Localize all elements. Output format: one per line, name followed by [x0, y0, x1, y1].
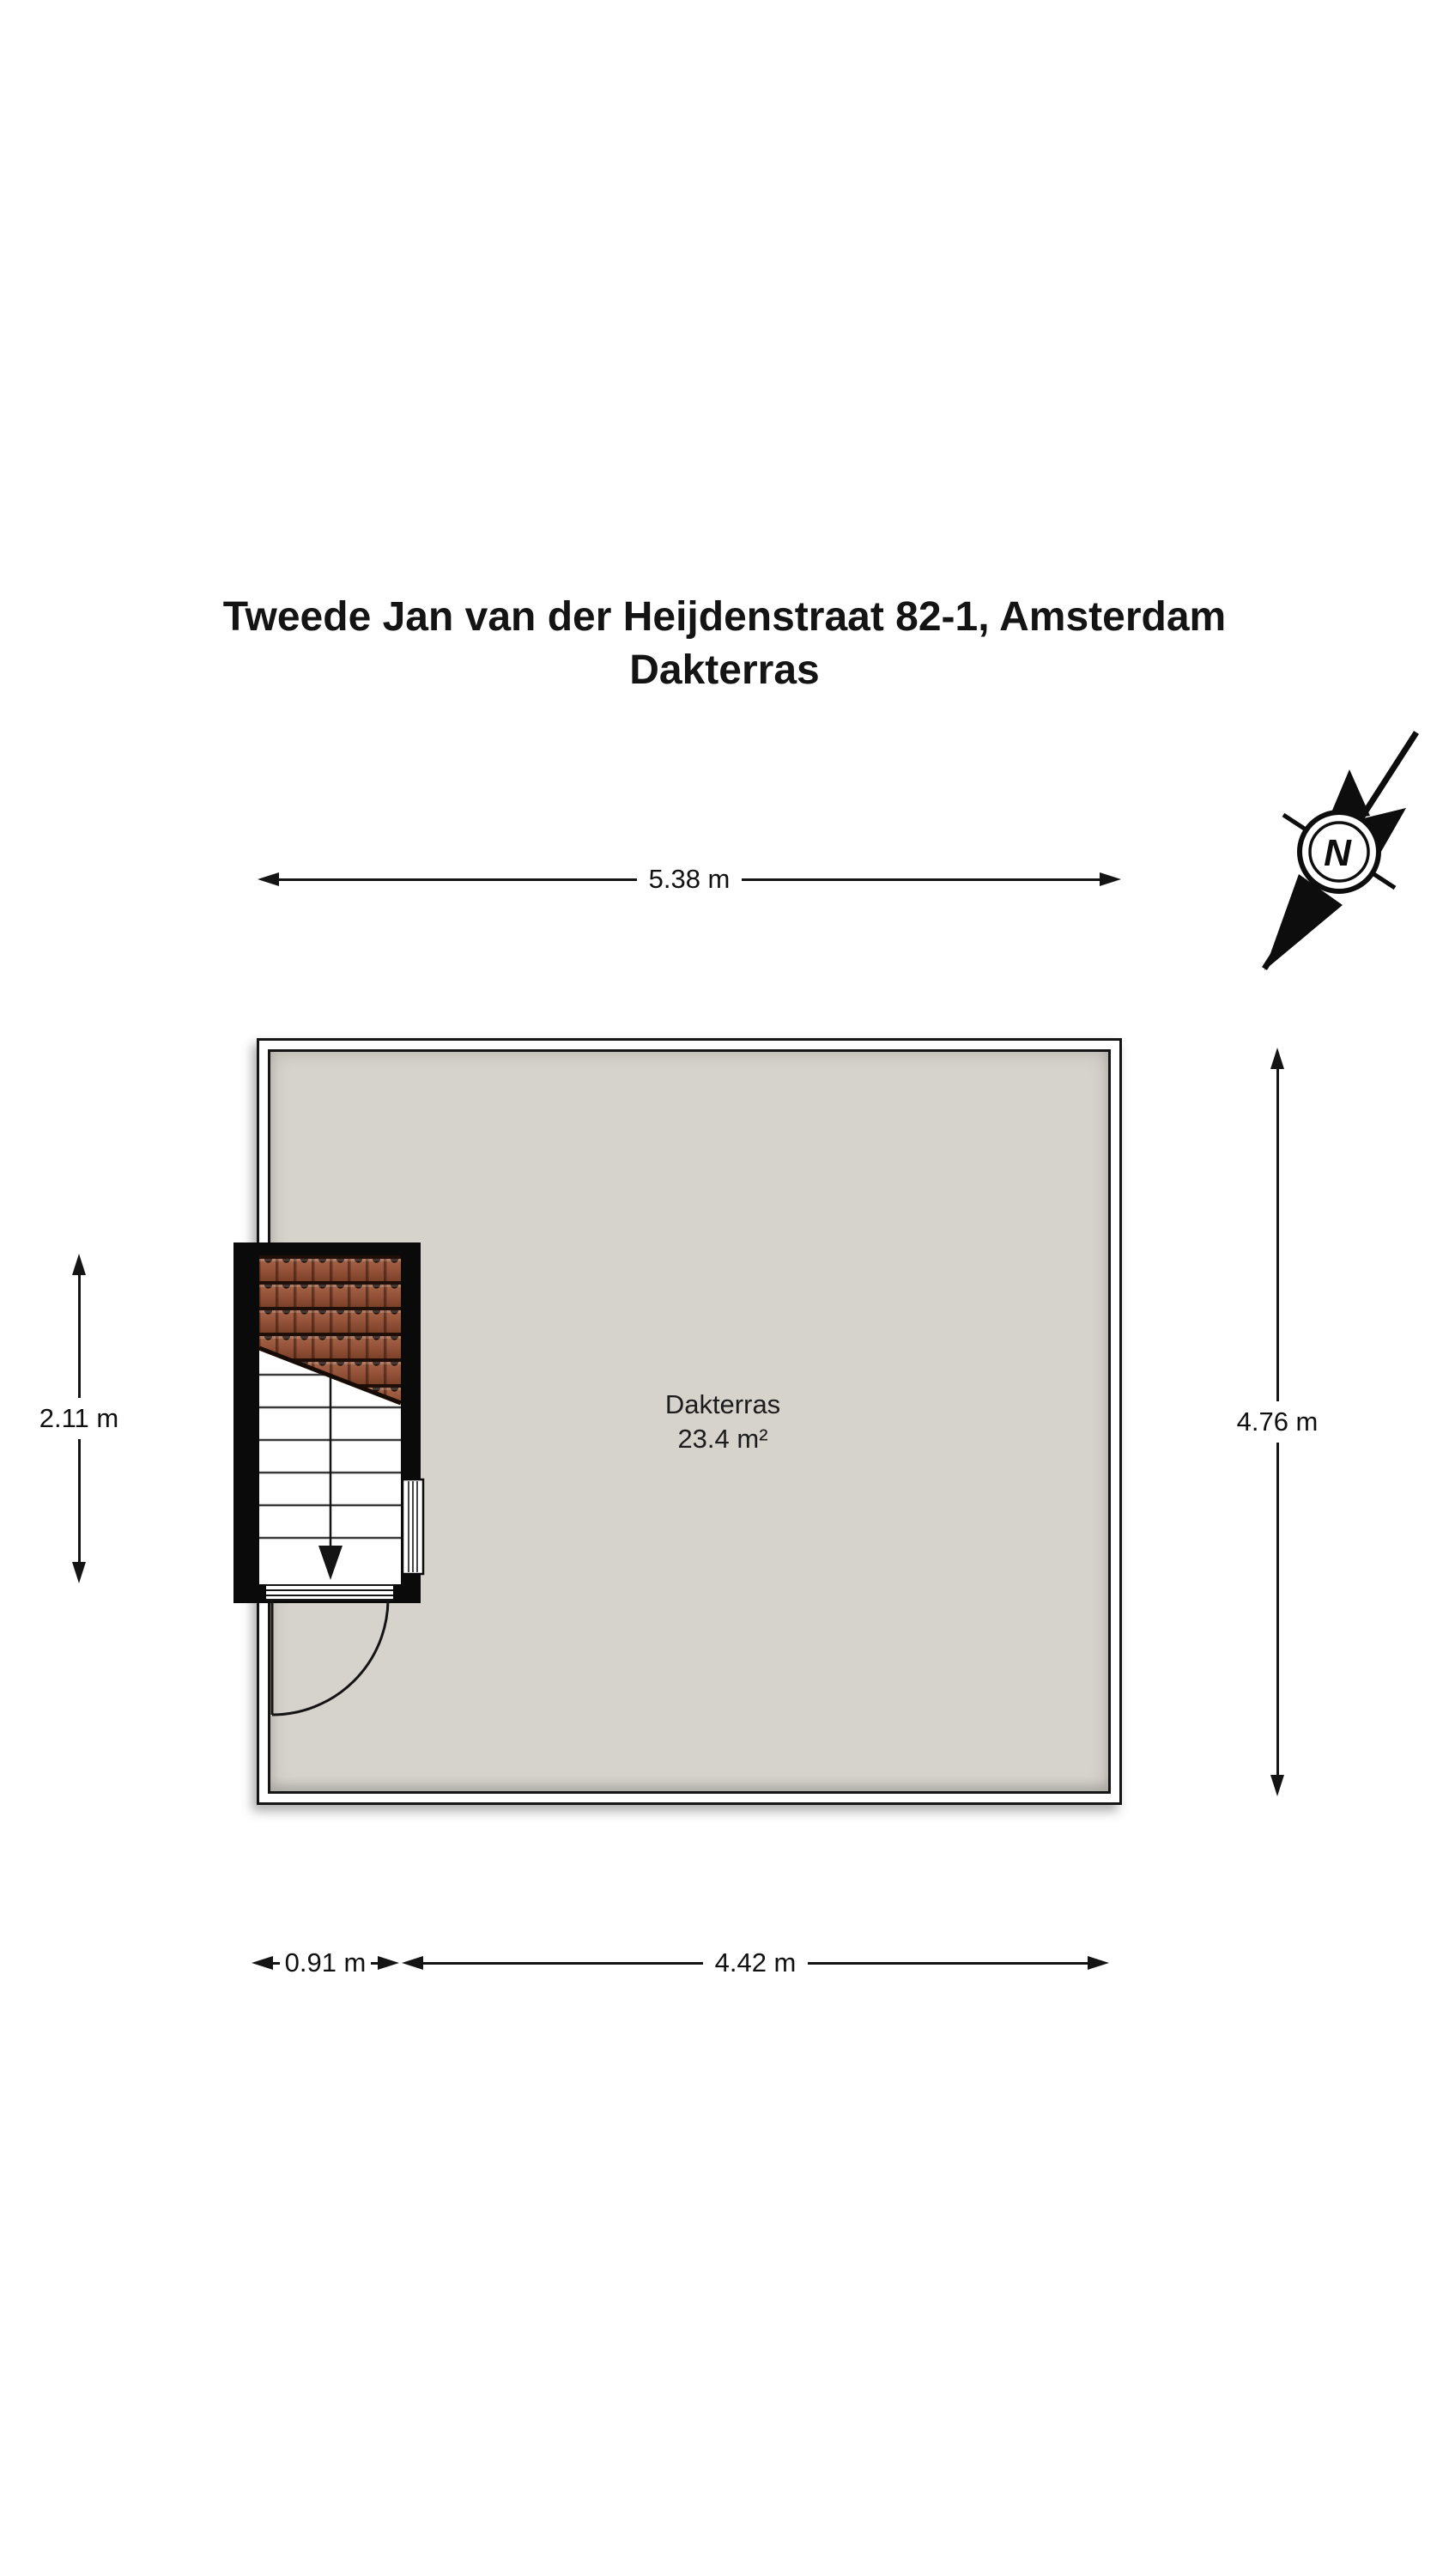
- dimension-line: [423, 1962, 703, 1965]
- compass-point-north: [1327, 769, 1370, 823]
- arrowhead-right-icon: [1100, 872, 1121, 886]
- dimension-line: [371, 1962, 378, 1965]
- dimension-right: 4.76 m: [1226, 1048, 1329, 1796]
- compass: N: [1264, 732, 1416, 970]
- arrowhead-right-icon: [1088, 1956, 1109, 1970]
- dimension-bottom-left-label: 0.91 m: [280, 1949, 371, 1977]
- arrowhead-up-icon: [1270, 1048, 1284, 1069]
- dimension-top-label: 5.38 m: [637, 866, 743, 893]
- dimension-right-label: 4.76 m: [1237, 1401, 1319, 1443]
- room-name: Dakterras: [594, 1388, 852, 1422]
- dimension-line: [742, 878, 1100, 881]
- page-title: Tweede Jan van der Heijdenstraat 82-1, A…: [0, 591, 1449, 697]
- floorplan-page: Tweede Jan van der Heijdenstraat 82-1, A…: [0, 0, 1449, 2576]
- dimension-line: [1276, 1069, 1279, 1401]
- arrowhead-down-icon: [1270, 1775, 1284, 1796]
- room-label: Dakterras 23.4 m²: [594, 1388, 852, 1456]
- dimension-line: [78, 1275, 81, 1398]
- compass-tail: [1264, 874, 1343, 970]
- room-area: 23.4 m²: [594, 1422, 852, 1456]
- arrowhead-down-icon: [72, 1562, 86, 1583]
- dimension-bottom-right-label: 4.42 m: [703, 1949, 809, 1977]
- arrowhead-left-icon: [402, 1956, 423, 1970]
- compass-needle-line: [1264, 732, 1416, 969]
- compass-point-east: [1353, 808, 1406, 862]
- arrowhead-left-icon: [252, 1956, 273, 1970]
- dimension-line: [279, 878, 637, 881]
- dimension-bottom-left: 0.91 m: [252, 1949, 399, 1977]
- dimension-top: 5.38 m: [258, 866, 1121, 893]
- compass-n-letter: N: [1324, 832, 1352, 874]
- arrowhead-left-icon: [258, 872, 279, 886]
- arrowhead-right-icon: [378, 1956, 399, 1970]
- dimension-bottom-right: 4.42 m: [402, 1949, 1109, 1977]
- arrowhead-up-icon: [72, 1254, 86, 1275]
- compass-ring-outer: [1300, 812, 1379, 891]
- dimension-line: [273, 1962, 280, 1965]
- title-address: Tweede Jan van der Heijdenstraat 82-1, A…: [0, 591, 1449, 644]
- dimension-left-label: 2.11 m: [39, 1398, 118, 1439]
- dimension-line: [808, 1962, 1088, 1965]
- dimension-left: 2.11 m: [27, 1254, 130, 1583]
- dimension-line: [78, 1439, 81, 1562]
- title-floor: Dakterras: [0, 644, 1449, 697]
- dimension-line: [1276, 1443, 1279, 1775]
- compass-ring-inner: [1310, 823, 1368, 881]
- compass-cross-line: [1283, 815, 1395, 888]
